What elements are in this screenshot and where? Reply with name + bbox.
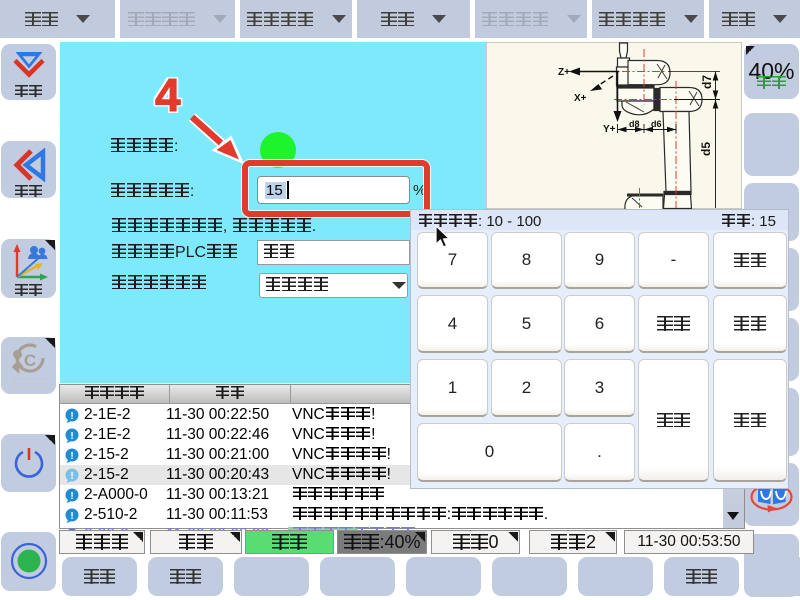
svg-text:!: !	[70, 491, 73, 502]
svg-text:!: !	[70, 451, 73, 462]
svg-text:d6: d6	[651, 119, 662, 129]
svg-text:!: !	[70, 471, 73, 482]
svg-text:Y+: Y+	[603, 124, 616, 135]
svg-text:!: !	[70, 511, 73, 522]
svg-text:X+: X+	[574, 93, 587, 104]
svg-text:d7: d7	[700, 75, 714, 89]
svg-text:C: C	[24, 351, 36, 370]
svg-text:Z+: Z+	[558, 67, 570, 78]
svg-text:!: !	[70, 411, 73, 422]
svg-text:d8: d8	[629, 119, 640, 129]
svg-text:d5: d5	[699, 142, 713, 156]
svg-text:!: !	[70, 431, 73, 442]
